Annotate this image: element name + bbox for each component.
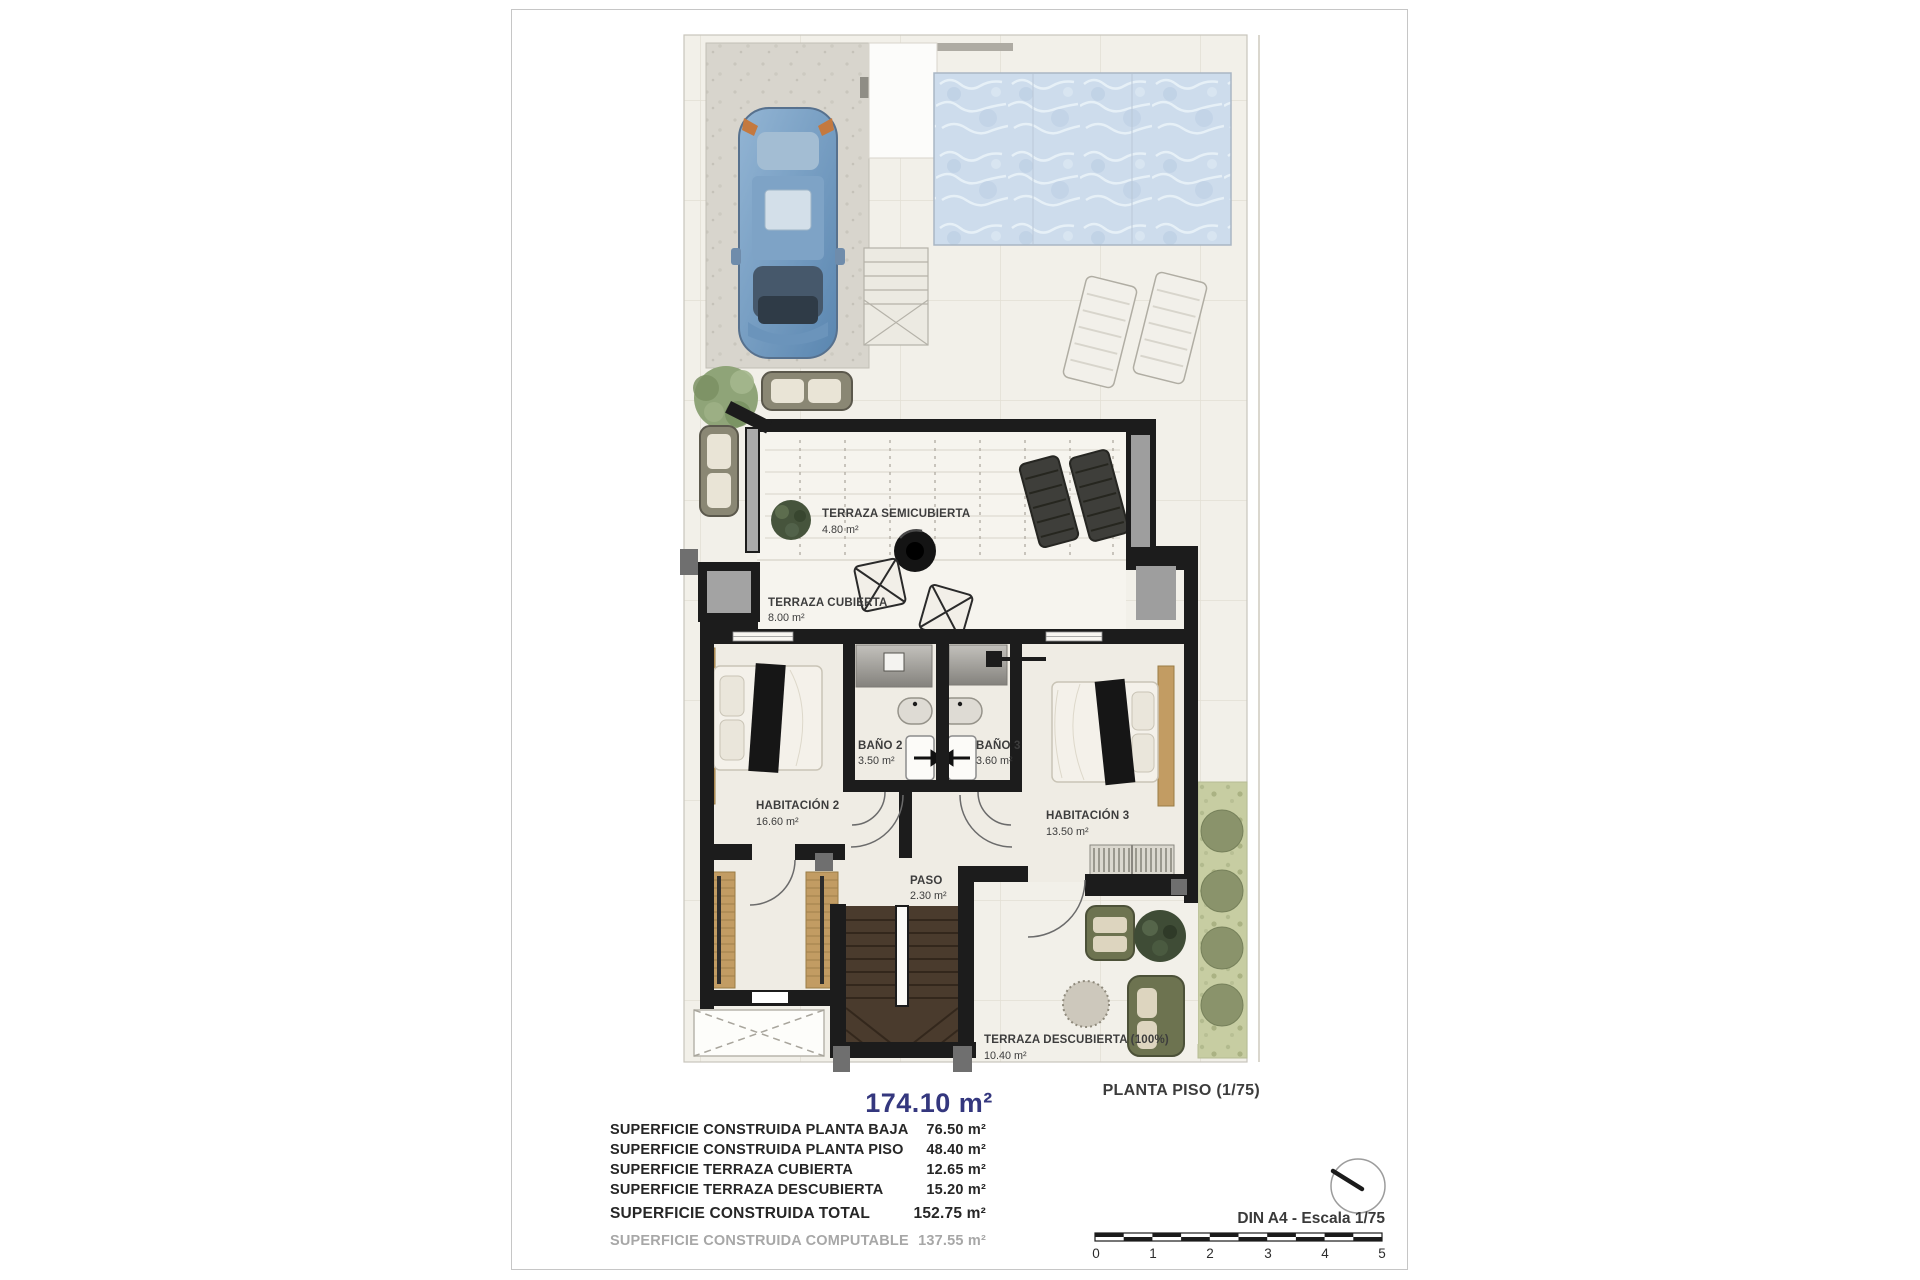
row-value: 137.55 m² (918, 1233, 986, 1249)
scale-bar (1095, 1233, 1382, 1241)
svg-text:4.80 m²: 4.80 m² (822, 524, 859, 536)
terrace-plant (771, 500, 811, 540)
table-row: SUPERFICIE CONSTRUIDA PLANTA BAJA 76.50 … (610, 1122, 986, 1142)
wall-notch (752, 992, 788, 1003)
table-row-computable: SUPERFICIE CONSTRUIDA COMPUTABLE 137.55 … (610, 1233, 986, 1253)
svg-text:3.50 m²: 3.50 m² (858, 755, 895, 767)
terrace-table (894, 530, 936, 572)
svg-text:8.00 m²: 8.00 m² (768, 612, 805, 624)
table-row: SUPERFICIE CONSTRUIDA PLANTA PISO 48.40 … (610, 1142, 986, 1162)
row-label: SUPERFICIE TERRAZA DESCUBIERTA (610, 1182, 883, 1198)
compass-icon (1331, 1159, 1385, 1213)
row-label: SUPERFICIE CONSTRUIDA PLANTA PISO (610, 1142, 904, 1158)
scale-tick: 1 (1144, 1246, 1162, 1261)
scale-tick: 5 (1373, 1246, 1391, 1261)
label-terraza-semicubierta: TERRAZA SEMICUBIERTA (822, 508, 970, 520)
car (731, 108, 845, 358)
outdoor-sofa-left (700, 426, 738, 516)
hab3-wardrobe-hatch (1090, 845, 1174, 875)
floor-plan-sheet: TERRAZA SEMICUBIERTA 4.80 m² TERRAZA CUB… (0, 0, 1920, 1280)
stairs (846, 906, 958, 1052)
table-row: SUPERFICIE TERRAZA DESCUBIERTA 15.20 m² (610, 1182, 986, 1202)
row-value: 12.65 m² (926, 1162, 986, 1178)
garden-strip (1198, 782, 1247, 1058)
exterior-steps (864, 248, 928, 345)
label-habitacion-2: HABITACIÓN 2 (756, 799, 839, 812)
svg-text:3.60 m²: 3.60 m² (976, 755, 1013, 767)
label-bano-3: BAÑO 3 (976, 739, 1021, 752)
label-terraza-cubierta: TERRAZA CUBIERTA (768, 597, 887, 609)
scale-tick: 0 (1087, 1246, 1105, 1261)
void-cross-box (694, 1010, 824, 1056)
svg-text:10.40 m²: 10.40 m² (984, 1050, 1027, 1062)
surface-table: SUPERFICIE CONSTRUIDA PLANTA BAJA 76.50 … (610, 1122, 986, 1253)
outdoor-sofa-top (762, 372, 852, 410)
scale-tick: 3 (1259, 1246, 1277, 1261)
plan-title: PLANTA PISO (1/75) (1040, 1082, 1260, 1100)
table-row-total: SUPERFICIE CONSTRUIDA TOTAL 152.75 m² (610, 1205, 986, 1228)
row-value: 152.75 m² (914, 1205, 986, 1223)
svg-text:13.50 m²: 13.50 m² (1046, 826, 1089, 838)
pool (934, 73, 1231, 245)
label-bano-2: BAÑO 2 (858, 739, 903, 752)
row-label: SUPERFICIE CONSTRUIDA TOTAL (610, 1205, 870, 1223)
scale-tick: 2 (1201, 1246, 1219, 1261)
row-value: 76.50 m² (926, 1122, 986, 1138)
svg-text:2.30 m²: 2.30 m² (910, 890, 947, 902)
label-paso: PASO (910, 875, 943, 887)
scale-tick: 4 (1316, 1246, 1334, 1261)
table-row: SUPERFICIE TERRAZA CUBIERTA 12.65 m² (610, 1162, 986, 1182)
row-value: 15.20 m² (926, 1182, 986, 1198)
svg-text:16.60 m²: 16.60 m² (756, 816, 799, 828)
row-value: 48.40 m² (926, 1142, 986, 1158)
label-terraza-descubierta: TERRAZA DESCUBIERTA (100%) (984, 1034, 1169, 1046)
row-label: SUPERFICIE CONSTRUIDA PLANTA BAJA (610, 1122, 909, 1138)
label-habitacion-3: HABITACIÓN 3 (1046, 809, 1129, 822)
row-label: SUPERFICIE CONSTRUIDA COMPUTABLE (610, 1233, 909, 1249)
row-label: SUPERFICIE TERRAZA CUBIERTA (610, 1162, 853, 1178)
scale-note: DIN A4 - Escala 1/75 (1140, 1210, 1385, 1228)
